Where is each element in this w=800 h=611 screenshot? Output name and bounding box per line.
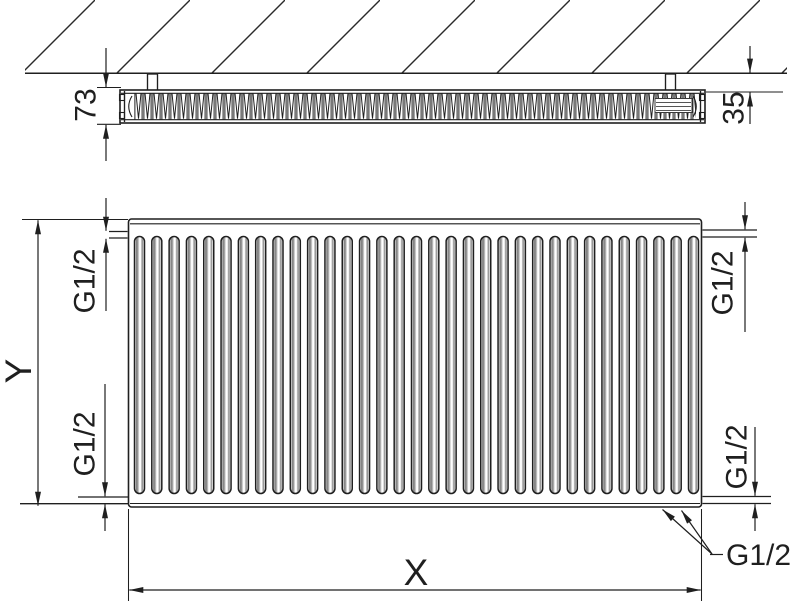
dimension-label-height: Y [0, 359, 39, 384]
panel-channel [221, 237, 231, 494]
panel-channel [377, 237, 387, 494]
connection-label-bottom-right: G1/2 [721, 424, 754, 489]
dimension-g12-top-right: G1/2 [707, 202, 746, 332]
panel-channel [619, 237, 629, 494]
panel-channel [412, 237, 422, 494]
panel-channel [169, 237, 179, 494]
connection-label-top-right: G1/2 [707, 250, 740, 315]
panel-channel [256, 237, 266, 494]
panel-channel [463, 237, 473, 494]
wall-hatch [25, 0, 787, 73]
panel-channel [394, 237, 404, 494]
panel-channel [498, 237, 508, 494]
convector-fins [134, 93, 696, 119]
connection-label-bottom-valve: G1/2 [726, 539, 791, 572]
connection-label-bottom-left: G1/2 [69, 411, 102, 476]
radiator-technical-drawing: 73 35 [0, 0, 800, 611]
panel-channel [533, 237, 543, 494]
top-view: 73 35 [25, 0, 787, 161]
dimension-g12-bottom-right: G1/2 [721, 424, 756, 531]
panel-channel [671, 237, 681, 494]
front-view: G1/2 G1/2 G1/2 G1/2 Y [0, 198, 791, 601]
pipe-stub-top-left [109, 232, 128, 239]
panel-channel [515, 237, 525, 494]
pipe-stub-bottom-left [20, 497, 128, 504]
panel-channel [204, 237, 214, 494]
panel-channel [567, 237, 577, 494]
valve-connection-callout: G1/2 [663, 510, 792, 573]
panel-channel [308, 237, 318, 494]
panel-channel [446, 237, 456, 494]
panel-channel [325, 237, 335, 494]
dimension-label-wall-distance: 35 [718, 91, 751, 124]
dimension-label-width: X [404, 552, 429, 593]
pipe-stub-bottom-right [703, 497, 772, 504]
panel-channel [342, 237, 352, 494]
panel-channel [135, 237, 145, 494]
radiator-panel [129, 219, 702, 507]
panel-channel [689, 237, 699, 494]
bracket-clip-detail [655, 99, 692, 113]
panel-channel [238, 237, 248, 494]
radiator-top-view [120, 90, 706, 123]
pipe-stub-top-right [703, 230, 758, 237]
mounting-bracket-right [666, 74, 676, 91]
dimension-label-depth: 73 [70, 88, 103, 121]
dimension-height: Y [0, 220, 39, 506]
panel-channel [186, 237, 196, 494]
dimension-g12-bottom-left: G1/2 [69, 384, 106, 531]
drawing-svg: 73 35 [0, 0, 800, 611]
panel-channel [429, 237, 439, 494]
panel-channel [481, 237, 491, 494]
dimension-width: X [129, 509, 702, 601]
panel-channel [585, 237, 595, 494]
panel-channel [637, 237, 647, 494]
panel-channel [602, 237, 612, 494]
connection-label-top-left: G1/2 [69, 248, 102, 313]
mounting-bracket-left [148, 74, 158, 91]
panel-channel [550, 237, 560, 494]
panel-channel [273, 237, 283, 494]
panel-channel [360, 237, 370, 494]
panel-channel [654, 237, 664, 494]
panel-channel [152, 237, 162, 494]
panel-channel [290, 237, 300, 494]
